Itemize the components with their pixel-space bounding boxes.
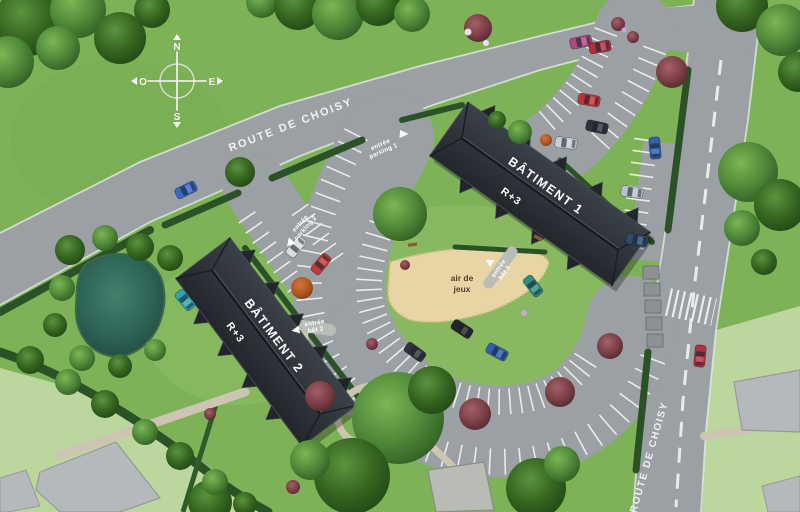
tree xyxy=(488,111,506,129)
car xyxy=(649,137,662,160)
site-plan: air de jeux xyxy=(0,0,800,512)
parking-stripe xyxy=(505,449,506,475)
compass-east-label: E xyxy=(209,77,216,88)
flower-pot xyxy=(540,134,552,146)
tree xyxy=(373,187,427,241)
car xyxy=(554,136,577,149)
site-plan-svg: air de jeux xyxy=(0,0,800,512)
tree xyxy=(508,120,532,144)
compass-north-label: N xyxy=(173,42,180,53)
compass-south-label: S xyxy=(174,112,181,123)
tree xyxy=(751,249,777,275)
tree xyxy=(225,157,255,187)
car xyxy=(694,345,707,368)
playground-label-line1: air de xyxy=(451,273,474,283)
playground-label-line2: jeux xyxy=(452,284,470,294)
compass-west-label: O xyxy=(139,77,147,88)
orange-tree xyxy=(291,277,313,299)
terrace-platform xyxy=(428,462,494,512)
